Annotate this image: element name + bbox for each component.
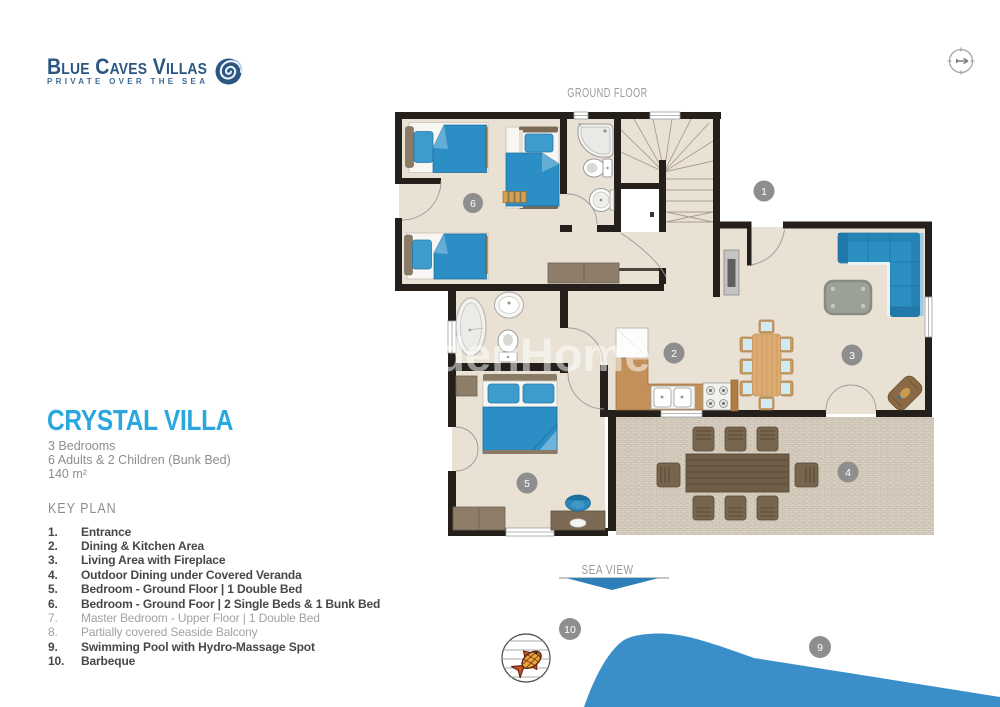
svg-text:2: 2 bbox=[671, 348, 677, 360]
svg-text:10: 10 bbox=[564, 624, 576, 636]
svg-text:6: 6 bbox=[470, 198, 476, 210]
svg-text:9: 9 bbox=[817, 642, 823, 654]
svg-text:1: 1 bbox=[761, 186, 767, 198]
svg-text:4: 4 bbox=[845, 467, 851, 479]
svg-text:3: 3 bbox=[849, 350, 855, 362]
svg-text:5: 5 bbox=[524, 478, 530, 490]
svg-text:GoldenHome: GoldenHome bbox=[358, 328, 650, 381]
